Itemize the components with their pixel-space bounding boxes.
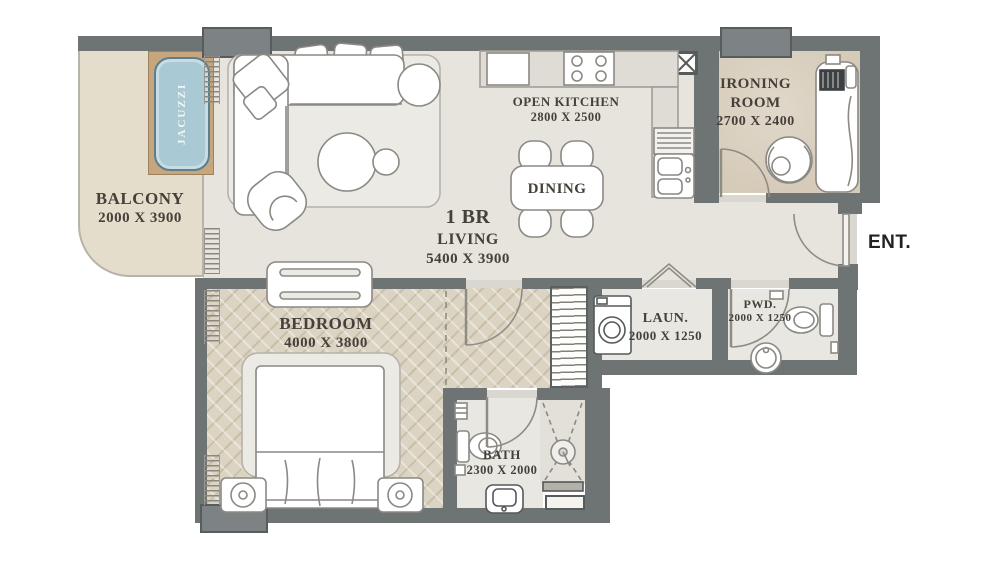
ironing-name-2: ROOM (730, 95, 780, 111)
floor-plan: JACUZZI (0, 0, 1000, 562)
entrance-door (794, 214, 849, 266)
living-name-2: LIVING (437, 231, 499, 248)
bedroom-dims: 4000 X 3800 (258, 334, 394, 353)
shower (543, 403, 583, 491)
bedroom-door (466, 289, 522, 345)
pwd-basin (751, 343, 781, 373)
bedroom-label: BEDROOM 4000 X 3800 (258, 313, 394, 353)
laundry-basket (766, 137, 812, 183)
living-dims: 5400 X 3900 (398, 250, 538, 269)
dining-label: DINING (512, 180, 602, 199)
tv-console (267, 262, 372, 307)
bed (256, 366, 384, 508)
kitchen-dims: 2800 X 2500 (491, 110, 641, 126)
fridge (487, 53, 529, 85)
ironing-name-1: IRONING (720, 76, 791, 92)
powder-label: PWD. 2000 X 1250 (715, 297, 805, 326)
nightstand-left (221, 478, 266, 512)
bath-dims: 2300 X 2000 (457, 463, 547, 479)
laundry-dims: 2000 X 1250 (618, 328, 713, 344)
nightstand-right (378, 478, 423, 512)
laundry-label: LAUN. 2000 X 1250 (618, 310, 713, 344)
laundry-name: LAUN. (643, 311, 689, 326)
ironing-label: IRONING ROOM 2700 X 2400 (688, 75, 823, 130)
bedroom-name: BEDROOM (279, 314, 372, 333)
balcony-label: BALCONY 2000 X 3900 (75, 188, 205, 228)
balcony-dims: 2000 X 3900 (75, 209, 205, 228)
kitchen-sink (654, 128, 694, 198)
ironing-dims: 2700 X 2400 (688, 113, 823, 131)
balcony-name: BALCONY (96, 189, 185, 208)
stove (564, 52, 614, 85)
entrance-label: ENT. (868, 232, 911, 254)
powder-name: PWD. (744, 297, 777, 311)
powder-dims: 2000 X 1250 (715, 312, 805, 326)
living-name-1: 1 BR (446, 206, 491, 228)
dining-name: DINING (528, 181, 587, 197)
bath-name: BATH (483, 447, 521, 462)
kitchen-name: OPEN KITCHEN (513, 94, 620, 109)
ironing-door (721, 149, 769, 197)
bath-vanity (486, 485, 523, 513)
bath-label: BATH 2300 X 2000 (457, 447, 547, 479)
living-label: 1 BR LIVING 5400 X 3900 (398, 205, 538, 269)
kitchen-label: OPEN KITCHEN 2800 X 2500 (491, 94, 641, 126)
shaft-x-icon (677, 54, 695, 72)
laundry-bifold-doors (642, 264, 696, 287)
side-table (398, 64, 440, 106)
